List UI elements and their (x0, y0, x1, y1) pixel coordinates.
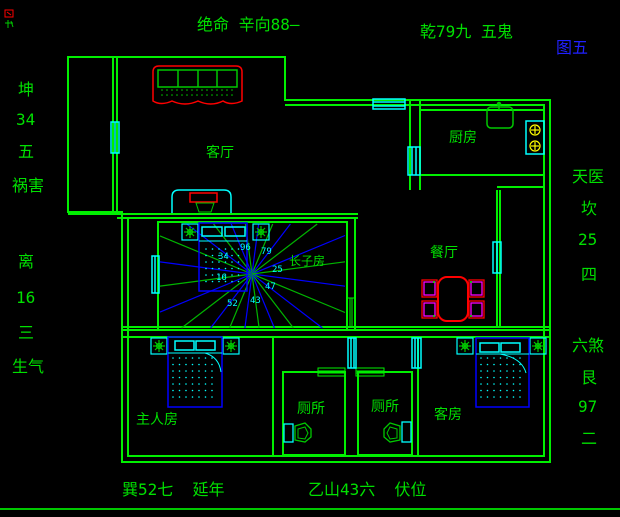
label-right-liusha: 六煞 (572, 337, 604, 355)
sofa (153, 66, 242, 104)
compass-number-25: 25 (272, 266, 283, 275)
label-left-kun: 坤 (18, 81, 34, 99)
stove-icon (526, 121, 544, 154)
label-right-97: 97 (578, 398, 597, 416)
label-left-li: 离 (18, 253, 34, 271)
label-top-jueming: 绝命 辛向88— (197, 16, 300, 34)
label-bottom-yishan: 乙山43六 伏位 (308, 481, 427, 499)
compass-number-96: 96 (240, 244, 251, 253)
kitchen-sink-icon (487, 103, 513, 129)
lamp-icons (151, 224, 546, 354)
room-label-toilet-1: 厕所 (297, 402, 325, 417)
compass-number-16: 16 (216, 274, 227, 283)
room-label-eldest-son: 长子房 (289, 255, 325, 268)
label-right-si: 四 (581, 266, 597, 284)
label-right-er: 二 (581, 430, 597, 448)
compass-number-47: 47 (265, 283, 276, 292)
armchair (172, 190, 231, 213)
label-right-gen: 艮 (581, 369, 597, 387)
label-left-16: 16 (16, 289, 35, 307)
bed-guest (476, 338, 529, 407)
room-label-toilet-2: 厕所 (371, 400, 399, 415)
compass-number-43: 43 (250, 297, 261, 306)
dining-set (422, 277, 484, 321)
compass-number-34: 34 (218, 253, 229, 262)
cad-floorplan-screen: 绝命 辛向88— 乾79九 五鬼 图五 坤 34 五 祸害 离 16 三 生气 … (0, 0, 620, 517)
label-left-san: 三 (18, 324, 34, 342)
room-label-living: 客厅 (206, 146, 234, 161)
room-label-master: 主人房 (136, 413, 178, 428)
label-right-25: 25 (578, 231, 597, 249)
room-label-kitchen: 厨房 (449, 131, 477, 146)
label-left-shengqi: 生气 (12, 358, 44, 376)
toilet-icon-2 (384, 422, 411, 442)
label-left-wu: 五 (18, 143, 34, 161)
compass-number-79: 79 (261, 248, 272, 257)
figure-number-label: 图五 (556, 39, 588, 57)
room-label-dining: 餐厅 (430, 246, 458, 261)
label-right-tianyi: 天医 (572, 168, 604, 186)
label-left-huohai: 祸害 (12, 177, 44, 195)
label-right-kan: 坎 (581, 200, 597, 218)
label-top-right-qian: 乾79九 五鬼 (420, 23, 513, 41)
room-label-guest: 客房 (434, 408, 462, 423)
toilet-icon-1 (284, 423, 311, 442)
bed-master (168, 337, 222, 407)
label-left-34: 34 (16, 111, 35, 129)
label-bottom-xun: 巽52七 延年 (122, 481, 225, 499)
compass-number-52: 52 (227, 300, 238, 309)
corner-glyph-icon (5, 10, 13, 28)
